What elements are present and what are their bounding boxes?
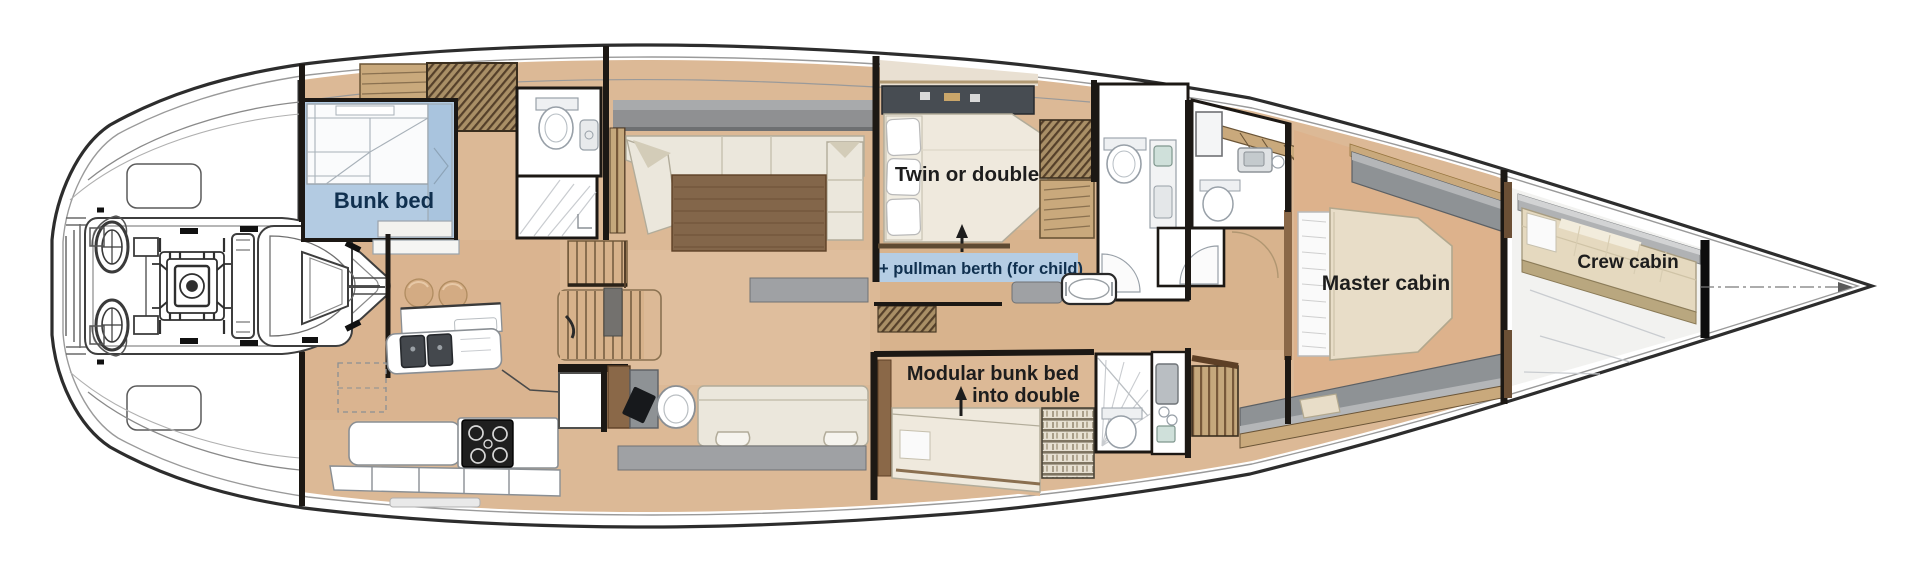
svg-text:Crew cabin: Crew cabin <box>1577 252 1678 273</box>
svg-text:into double: into double <box>972 385 1080 407</box>
svg-text:Twin or double: Twin or double <box>895 163 1039 186</box>
svg-text:+ pullman berth (for child): + pullman berth (for child) <box>879 260 1083 278</box>
svg-text:Bunk bed: Bunk bed <box>334 188 434 213</box>
svg-text:Modular bunk bed: Modular bunk bed <box>907 363 1079 385</box>
svg-text:Master cabin: Master cabin <box>1322 272 1450 295</box>
